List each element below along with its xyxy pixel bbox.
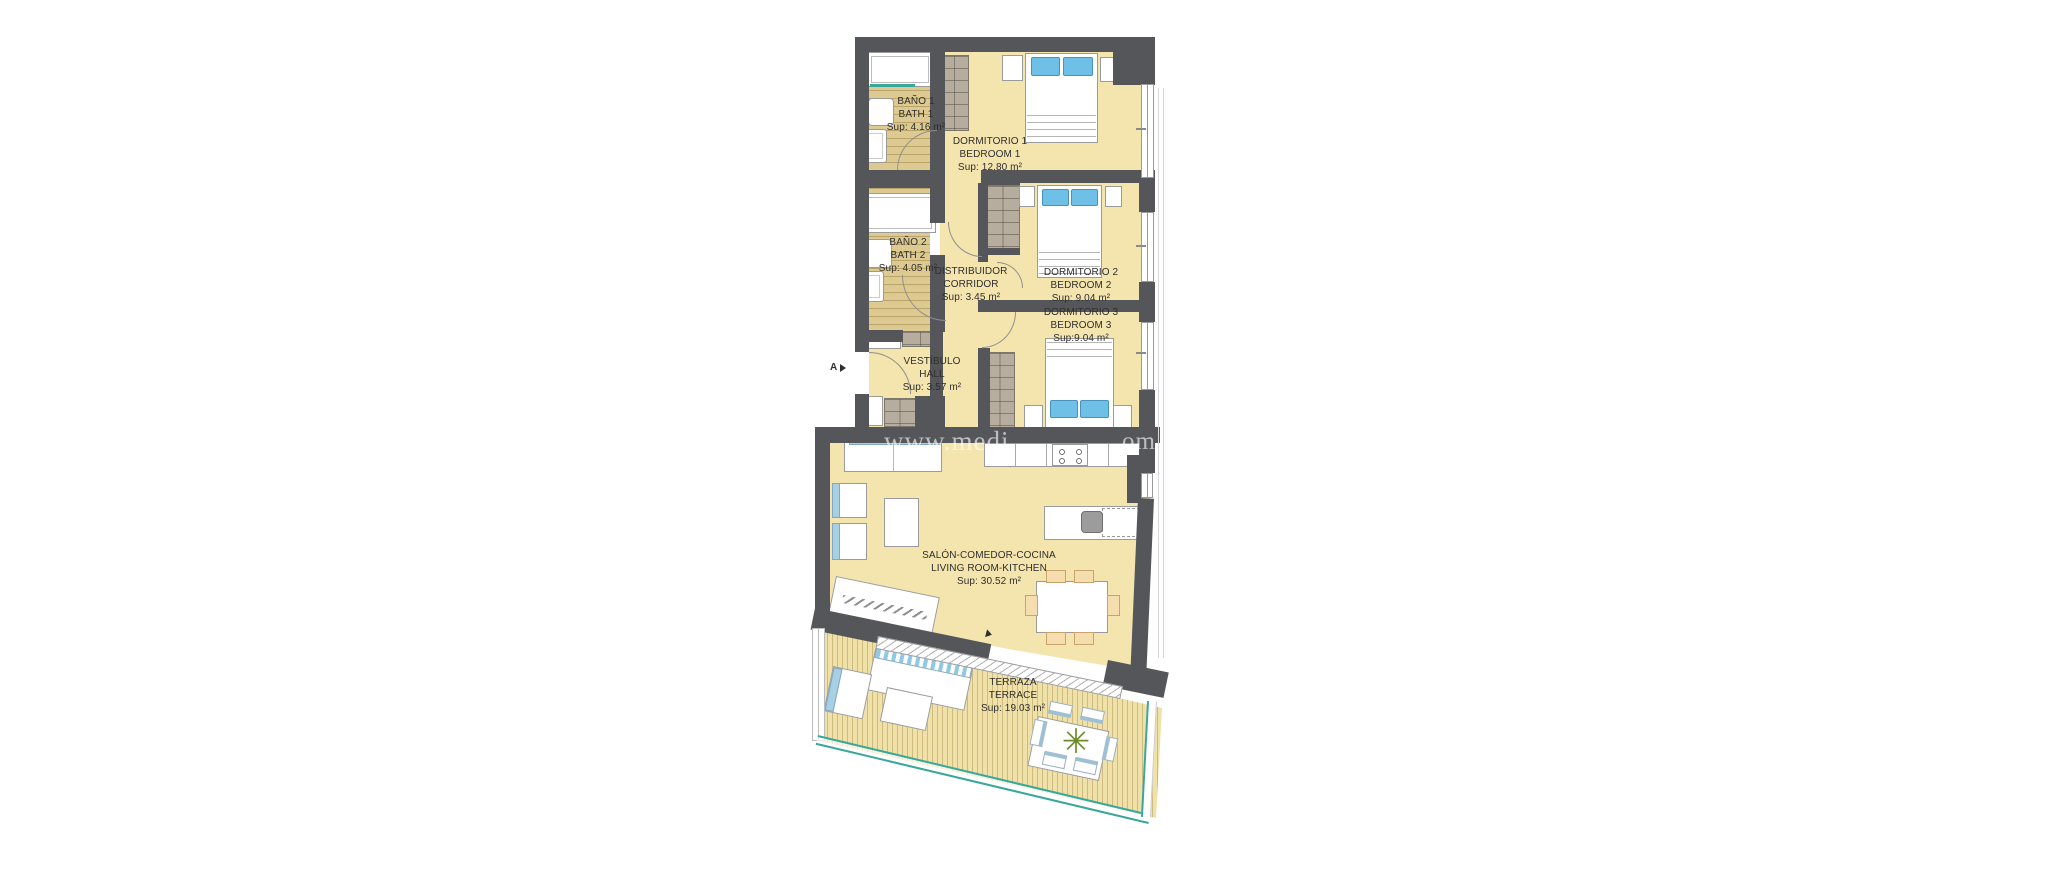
room-area: Sup: 30.52 m² (922, 575, 1056, 588)
room-name-es: DORMITORIO 2 (1044, 266, 1118, 279)
terrace-railing-left (812, 628, 825, 741)
room-label-bedroom2: DORMITORIO 2 BEDROOM 2 Sup: 9.04 m² (1044, 266, 1118, 306)
armchair-cushion (832, 523, 840, 560)
dining-chair (1046, 632, 1066, 645)
wall-left-upper (855, 37, 869, 352)
nightstand (1019, 186, 1035, 207)
window-bedroom1 (1141, 84, 1154, 178)
dining-table (1036, 581, 1108, 633)
room-name-en: BEDROOM 3 (1044, 319, 1118, 332)
room-label-terrace: TERRAZA TERRACE Sup: 19.03 m² (981, 676, 1045, 716)
window-tick (1136, 128, 1146, 130)
section-marker-a: A (830, 363, 846, 373)
room-area: Sup: 3.57 m² (903, 381, 961, 394)
room-name-es: BAÑO 2 (879, 236, 937, 249)
wall-right-c (1139, 282, 1155, 322)
room-name-en: CORRIDOR (935, 278, 1008, 291)
hall-shelf (867, 341, 901, 349)
pillow (1050, 400, 1078, 418)
bathtub-bath1 (867, 52, 933, 87)
cooktop (1052, 444, 1088, 466)
room-label-hall: VESTÍBULO HALL Sup: 3.57 m² (903, 355, 961, 395)
wardrobe-bedroom3 (986, 352, 1015, 428)
room-name-en: BEDROOM 1 (953, 148, 1027, 161)
window-tick (1136, 352, 1146, 354)
room-label-corridor: DISTRIBUIDOR CORRIDOR Sup: 3.45 m² (935, 265, 1008, 305)
wardrobe-bedroom2 (987, 185, 1020, 249)
room-name-es: VESTÍBULO (903, 355, 961, 368)
window-tick (1136, 245, 1146, 247)
pillow (1071, 189, 1098, 206)
room-name-en: TERRACE (981, 689, 1045, 702)
window-bedroom3 (1141, 322, 1154, 390)
room-name-en: HALL (903, 368, 961, 381)
nightstand (1105, 186, 1122, 207)
room-name-es: BAÑO 1 (887, 95, 945, 108)
dishwasher-dashed (1102, 508, 1140, 537)
wall-right-b (1139, 178, 1155, 212)
room-area: Sup: 4.05 m² (879, 262, 937, 275)
room-name-en: BEDROOM 2 (1044, 279, 1118, 292)
room-name-en: BATH 1 (887, 108, 945, 121)
room-area: Sup: 12.80 m² (953, 161, 1027, 174)
window-bedroom2 (1141, 212, 1154, 282)
bathtub-bath2 (863, 193, 936, 233)
room-area: Sup: 19.03 m² (981, 702, 1045, 715)
floor-plan-canvas: ✳ A BAÑ (0, 0, 2048, 880)
dining-chair (1074, 632, 1094, 645)
room-name-en: LIVING ROOM-KITCHEN (922, 562, 1056, 575)
hall-closet-bottom (884, 398, 917, 427)
nightstand (1024, 405, 1043, 428)
room-name-es: DISTRIBUIDOR (935, 265, 1008, 278)
wall-top-right-corner (1113, 37, 1155, 85)
wall-bath-divider (869, 170, 945, 188)
pillow (1080, 400, 1109, 418)
bathmat-bath1 (870, 84, 915, 87)
room-name-es: DORMITORIO 3 (1044, 306, 1118, 319)
wall-right-e (1127, 455, 1155, 473)
room-label-bath1: BAÑO 1 BATH 1 Sup: 4.16 m² (887, 95, 945, 135)
dining-chair (1107, 595, 1120, 616)
room-area: Sup: 4.16 m² (887, 121, 945, 134)
pillow (1042, 189, 1069, 206)
room-name-en: BATH 2 (879, 249, 937, 262)
pillow (1063, 57, 1093, 76)
section-marker-label: A (830, 363, 837, 373)
room-label-bedroom3: DORMITORIO 3 BEDROOM 3 Sup:9.04 m² (1044, 306, 1118, 346)
room-label-bedroom1: DORMITORIO 1 BEDROOM 1 Sup: 12.80 m² (953, 135, 1027, 175)
wardrobe-frame (985, 248, 1020, 255)
room-label-bath2: BAÑO 2 BATH 2 Sup: 4.05 m² (879, 236, 937, 276)
watermark-right: om (1122, 428, 1156, 456)
wall-bath2-right-a (930, 188, 945, 223)
dining-chair (1025, 595, 1038, 616)
room-area: Sup:9.04 m² (1044, 332, 1118, 345)
room-area: Sup: 3.45 m² (935, 291, 1008, 304)
room-name-es: SALÓN-COMEDOR-COCINA (922, 549, 1056, 562)
dining-chair (1074, 570, 1094, 583)
wall-hall-top (855, 330, 903, 342)
nightstand (1002, 55, 1023, 81)
watermark-left: www.medi (884, 426, 1009, 457)
marker-arrow-icon (840, 364, 846, 372)
island-sink (1081, 511, 1103, 533)
room-label-living: SALÓN-COMEDOR-COCINA LIVING ROOM-KITCHEN… (922, 549, 1056, 589)
armchair-cushion (832, 483, 840, 518)
exterior-edge-line (1158, 88, 1164, 658)
wall-top (855, 37, 1155, 52)
bed-sheet-lines (1027, 115, 1096, 142)
room-name-es: TERRAZA (981, 676, 1045, 689)
room-area: Sup: 9.04 m² (1044, 292, 1118, 305)
room-name-es: DORMITORIO 1 (953, 135, 1027, 148)
wall-bedroom3-left (978, 348, 990, 427)
pillow (1031, 57, 1060, 76)
coffee-table (884, 498, 919, 547)
window-living (1141, 473, 1153, 498)
wall-living-left (815, 435, 830, 615)
nightstand (1113, 405, 1132, 428)
wall-hall-bottom-post (915, 396, 945, 427)
plant-icon: ✳ (1060, 727, 1092, 759)
